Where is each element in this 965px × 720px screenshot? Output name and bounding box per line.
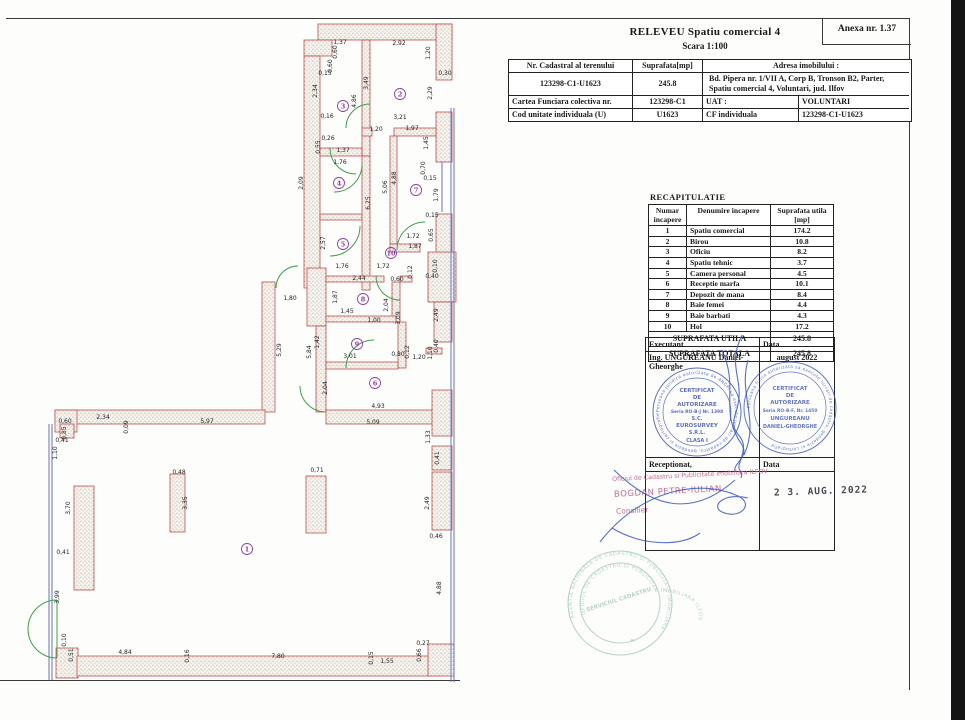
dimension-label: 0,30	[438, 70, 452, 77]
dimension-label: 1,45	[340, 308, 354, 315]
dimension-label: 3,70	[65, 501, 72, 515]
executant-value-row: Ing. UNGUREANU Daniel-Gheorghe august 20…	[646, 352, 834, 458]
floor-plan-svg: 1,370,602,921,200,600,150,302,343,494,86…	[0, 0, 480, 700]
executant-data-label: Data	[760, 338, 834, 352]
dimension-label: 0,12	[404, 345, 411, 359]
cf-individuala-label: CF individuala	[703, 109, 799, 121]
uat-value: VOLUNTARI	[799, 96, 909, 109]
dimension-label: 5,09	[366, 419, 380, 426]
dimension-label: 1,97	[405, 125, 419, 132]
svg-text:SERVICIUL CADASTRU: SERVICIUL CADASTRU	[586, 587, 652, 614]
dimension-label: 1,00	[367, 317, 381, 324]
property-header-table: Nr. Cadastral al terenului Suprafata[mp]…	[508, 59, 912, 122]
dimension-label: 0,60	[332, 45, 339, 59]
dimension-label: 0,15	[423, 175, 437, 182]
dimension-label: 1,80	[283, 295, 297, 302]
dimension-label: 1,33	[425, 430, 432, 444]
dimension-label: 4,88	[436, 581, 443, 595]
dimension-label: 2,92	[392, 40, 406, 47]
recap-row: 1Spatiu comercial174.2	[649, 226, 833, 237]
dimension-label: 1,45	[423, 136, 430, 150]
room-number: 8	[361, 295, 366, 303]
dimension-label: 0,15	[318, 70, 332, 77]
cartea-funciara-value: 123298-C1	[633, 96, 703, 109]
reception-date-stamp: 2 3. AUG. 2022	[774, 484, 868, 498]
dimension-label: 1,72	[406, 233, 420, 240]
dimension-label: 1,55	[380, 658, 394, 665]
dimension-label: 0,70	[420, 161, 427, 175]
dimension-label: 0,66	[416, 648, 423, 662]
dimension-label: 1,20	[369, 126, 383, 133]
executant-name: Ing. UNGUREANU Daniel-Gheorghe	[646, 352, 760, 458]
dimension-label: 3,01	[343, 353, 357, 360]
receptionat-stamp-area	[646, 472, 760, 550]
dimension-label: 0,10	[61, 633, 68, 647]
dimension-label: 0,60	[58, 418, 72, 425]
dimension-label: 0,40	[425, 273, 439, 280]
recap-row: 10Hol17.2	[649, 322, 833, 333]
document-page: Anexa nr. 1.37 RELEVEU Spatiu comercial …	[0, 0, 965, 720]
dimension-label: 2,34	[96, 414, 110, 421]
dimension-label: 2,04	[383, 298, 390, 312]
recap-header-denumire: Denumire incapere	[687, 205, 771, 226]
dimension-label: 1,20	[412, 354, 426, 361]
recap-header-numar: Numar incapere	[649, 205, 687, 226]
dimension-label: 1,37	[333, 39, 347, 46]
recap-header-row: Numar incapere Denumire incapere Suprafa…	[649, 205, 833, 226]
cod-unitate-label: Cod unitate individuala (U)	[509, 109, 633, 121]
dimension-label: 1,87	[332, 290, 339, 304]
dimension-label: 0,15	[368, 651, 375, 665]
dimension-label: 2,34	[312, 84, 319, 98]
cartea-funciara-label: Cartea Funciara colectiva nr.	[509, 96, 633, 109]
dimension-label: 0,60	[390, 276, 404, 283]
room-number: 1	[245, 545, 250, 553]
recap-body: 1Spatiu comercial174.22Birou10.83Oficiu8…	[649, 226, 833, 332]
dimension-label: 3,21	[393, 114, 407, 121]
dimension-label: 5,29	[276, 343, 283, 357]
recap-row: 8Baie femei4.4	[649, 300, 833, 311]
recap-row: 4Spatiu tehnic3.7	[649, 258, 833, 269]
dimension-label: 0,46	[429, 533, 443, 540]
executant-date: august 2022	[760, 352, 834, 458]
dimension-label: 0,12	[407, 265, 414, 279]
executant-label: Executant	[646, 338, 760, 352]
dimension-label: 2,57	[320, 236, 327, 250]
dimension-label: 0,16	[184, 649, 191, 663]
svg-text:AGENTIA NATIONALA DE CADASTRU: AGENTIA NATIONALA DE CADASTRU SI PUBLICI…	[554, 537, 681, 657]
signature-table: Executant Data Ing. UNGUREANU Daniel-Ghe…	[645, 337, 835, 551]
dimension-label: 0,10	[432, 259, 439, 273]
dimension-label: 1,76	[333, 159, 347, 166]
room-number: 2	[398, 90, 403, 98]
dimension-label: 0,41	[434, 451, 441, 465]
cod-unitate-value: U1623	[633, 109, 703, 121]
receptionat-value-row	[646, 472, 834, 550]
plan-dimensions: 1,370,602,921,200,600,150,302,343,494,86…	[52, 39, 452, 665]
page-title: RELEVEU Spatiu comercial 4	[505, 26, 905, 38]
executant-label-row: Executant Data	[646, 338, 834, 352]
dimension-label: 0,09	[123, 420, 130, 434]
dimension-label: 4,84	[118, 649, 132, 656]
recap-row: 3Oficiu8.2	[649, 247, 833, 258]
dimension-label: 0,65	[428, 228, 435, 242]
dimension-label: 5,06	[382, 180, 389, 194]
recap-title: RECAPITULATIE	[650, 192, 725, 202]
dimension-label: 4,86	[351, 94, 358, 108]
room-number: 3	[341, 102, 346, 110]
dimension-label: 0,48	[172, 469, 186, 476]
dimension-label: 3,35	[182, 496, 189, 510]
room-number: 10	[386, 249, 396, 257]
dimension-label: 0,41	[56, 549, 70, 556]
room-number: 6	[373, 379, 378, 387]
recap-row: 2Birou10.8	[649, 237, 833, 248]
dimension-label: 2,49	[433, 308, 440, 322]
dimension-label: 0,51	[68, 648, 75, 662]
dimension-label: 0,80	[391, 351, 405, 358]
svg-text:★: ★	[629, 637, 636, 644]
dimension-label: 7,80	[271, 653, 285, 660]
col-area-label: Suprafata[mp]	[633, 60, 703, 73]
dimension-label: 3,99	[54, 590, 61, 604]
dimension-label: 0,16	[320, 113, 334, 120]
uat-label: UAT :	[703, 96, 799, 109]
dimension-label: 1,42	[314, 335, 321, 349]
cadastral-number: 123298-C1-U1623	[509, 73, 633, 96]
scan-edge	[951, 0, 965, 720]
receptionat-date-area	[760, 472, 834, 550]
dimension-label: 0,15	[425, 212, 439, 219]
recap-row: 6Receptie marfa10.1	[649, 279, 833, 290]
dimension-label: 1,20	[425, 46, 432, 60]
dimension-label: 0,71	[310, 467, 324, 474]
dimension-label: 1,10	[427, 346, 434, 360]
cf-individuala-value: 123298-C1-U1623	[799, 109, 909, 121]
recap-header-suprafata: Suprafata utila [mp]	[771, 205, 833, 226]
dimension-label: 0,40	[433, 339, 440, 353]
room-number: 4	[337, 179, 342, 187]
dimension-label: 2,04	[322, 381, 329, 395]
dimension-label: 5,97	[200, 418, 214, 425]
col-address-label: Adresa imobilului :	[703, 60, 909, 73]
dimension-label: 2,29	[427, 86, 434, 100]
dimension-label: 3,49	[363, 76, 370, 90]
dimension-label: 0,55	[315, 140, 322, 154]
dimension-label: 1,72	[376, 263, 390, 270]
room-number: 9	[355, 340, 360, 348]
scale-label: Scara 1:100	[505, 41, 905, 51]
dimension-label: 3,09	[395, 311, 402, 325]
dimension-label: 1,10	[52, 446, 59, 460]
dimension-label: 6,25	[365, 196, 372, 210]
room-number: 7	[414, 186, 419, 194]
room-number: 5	[341, 240, 346, 248]
recap-row: 7Depozit de mana8.4	[649, 290, 833, 301]
dimension-label: 4,93	[371, 403, 385, 410]
area-value: 245.8	[633, 73, 703, 96]
dimension-label: 2,49	[424, 496, 431, 510]
dimension-label: 2,44	[352, 275, 366, 282]
svg-text:OFICIUL DE CADASTRU SI PUBLICI: OFICIUL DE CADASTRU SI PUBLICITATE IMOBI…	[570, 541, 706, 656]
dimension-label: 2,09	[298, 176, 305, 190]
recap-row: 5Camera personal4.5	[649, 269, 833, 280]
dimension-label: 1,76	[335, 263, 349, 270]
dimension-label: 1,37	[336, 147, 350, 154]
recap-row: 9Baie barbati4.3	[649, 311, 833, 322]
dimension-label: 5,84	[306, 345, 313, 359]
dimension-label: 4,88	[391, 171, 398, 185]
reception-office-stamp-line3: Consilier	[616, 505, 649, 516]
dimension-label: 1,87	[408, 243, 422, 250]
col-cadastral-label: Nr. Cadastral al terenului	[509, 60, 633, 73]
dimension-label: 0,41	[55, 437, 69, 444]
address-value: Bd. Pipera nr. 1/VII A, Corp B, Tronson …	[703, 73, 909, 96]
dimension-label: 0,26	[321, 135, 335, 142]
dimension-label: 1,79	[433, 188, 440, 202]
dimension-label: 0,27	[416, 640, 430, 647]
